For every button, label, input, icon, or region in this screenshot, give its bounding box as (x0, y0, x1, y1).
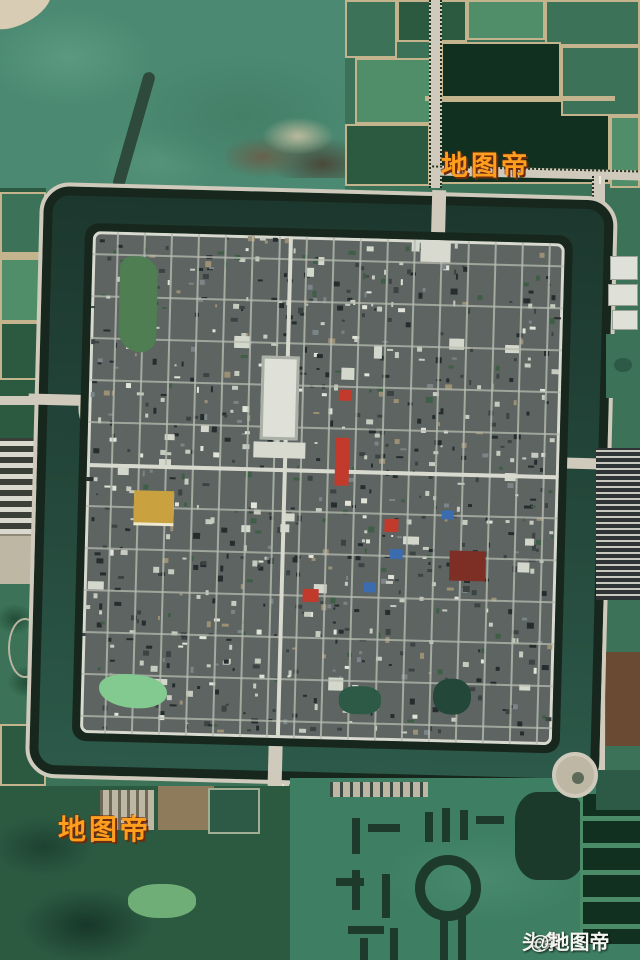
north-gate-square (420, 240, 451, 263)
watermark-handle: @地图帝 (530, 926, 610, 955)
street-vertical (239, 235, 254, 737)
dike-bar (352, 870, 360, 910)
satellite-image: 地图帝 地图帝 头条@地图帝 (0, 0, 640, 960)
dike-circle (415, 855, 481, 921)
lake-shoal (226, 108, 346, 178)
east-park-pond (614, 358, 632, 372)
street-vertical (293, 237, 308, 739)
street-vertical (374, 239, 389, 741)
bright-grass-patch (128, 884, 196, 918)
field-patch (345, 124, 430, 186)
street-vertical (104, 232, 119, 734)
street-vertical (347, 238, 362, 740)
blue-roof-building (390, 549, 403, 559)
lake-tree-spit (112, 71, 157, 190)
walled-city (25, 182, 618, 793)
street-vertical (212, 235, 227, 737)
street-vertical (401, 239, 416, 741)
dike-bar (382, 874, 390, 918)
street-vertical (185, 234, 200, 736)
central-complex (260, 356, 300, 441)
red-roof-row (334, 438, 349, 486)
roundabout (552, 752, 598, 798)
street-vertical (482, 242, 497, 744)
red-roof-building (384, 519, 398, 532)
street-vertical (509, 242, 524, 744)
bare-field (606, 652, 640, 746)
white-building (610, 256, 638, 280)
dike-bar (442, 808, 450, 842)
southeast-pond (433, 678, 472, 715)
lake-northwest (0, 0, 348, 192)
dike-bar (390, 928, 398, 960)
blue-roof-building (364, 582, 376, 592)
red-roof-building (339, 390, 352, 401)
small-pond (208, 788, 260, 834)
city-wall (72, 223, 573, 754)
blue-roof-building (442, 510, 454, 519)
dike-bar (352, 818, 360, 854)
street-vertical (536, 243, 551, 745)
boat-pier (330, 782, 428, 797)
field-patch (467, 0, 545, 40)
dike-bar (348, 926, 384, 934)
white-building (608, 284, 638, 306)
field-path (425, 96, 615, 101)
street-vertical (428, 240, 443, 742)
field-patch (545, 0, 640, 46)
lake-sandbar (0, 0, 58, 38)
east-pond (596, 770, 640, 810)
dike-bar (476, 816, 504, 824)
dike-bar (336, 878, 364, 886)
northwest-pond (118, 256, 158, 353)
white-building (612, 310, 638, 330)
central-plaza (253, 441, 305, 458)
dike-bar (368, 824, 400, 832)
dirt-lot (158, 786, 214, 830)
fishpond-patch (441, 42, 561, 100)
watermark-top-right: 地图帝 (441, 144, 531, 183)
dark-red-block (449, 551, 486, 582)
watermark-bottom-left: 地图帝 (58, 808, 151, 848)
dark-marsh (515, 792, 585, 880)
north-gate-bridge (431, 190, 446, 236)
dike-bar (460, 810, 468, 840)
field-patch (561, 46, 640, 116)
red-roof-building (302, 589, 318, 602)
street-vertical (158, 233, 173, 735)
street-vertical (320, 237, 335, 739)
golden-roof-temple (133, 490, 174, 523)
dike-channel (440, 916, 466, 960)
street-vertical (455, 241, 470, 743)
city-interior (80, 231, 565, 745)
south-pond (338, 686, 381, 715)
dike-bar (360, 938, 368, 960)
roundabout-center (572, 772, 584, 784)
east-outskirts (594, 176, 640, 960)
housing-rows (596, 448, 640, 600)
dike-bar (425, 812, 433, 842)
west-gate-bridge (28, 393, 82, 405)
field-patch (345, 0, 397, 58)
